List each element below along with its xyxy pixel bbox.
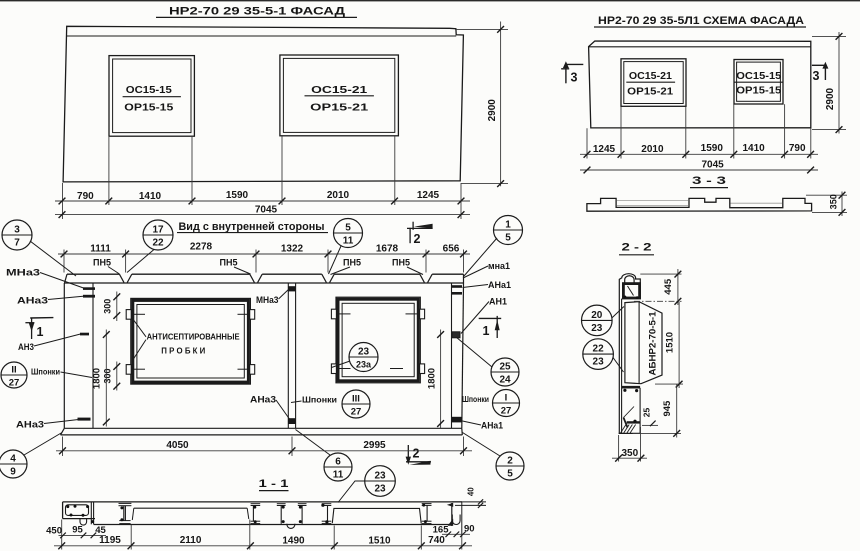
svg-text:АНа1: АНа1 [488,280,511,290]
svg-text:ОС15-15: ОС15-15 [126,85,172,96]
svg-text:2010: 2010 [641,144,664,155]
svg-text:1: 1 [505,220,511,231]
svg-text:АН3: АН3 [18,342,34,352]
svg-text:4: 4 [10,454,16,465]
svg-text:АБНР2-70-5-1: АБНР2-70-5-1 [648,312,658,376]
svg-text:ОС15-21: ОС15-21 [311,85,368,96]
svg-text:27: 27 [9,378,20,389]
svg-text:20: 20 [591,310,603,321]
svg-text:165: 165 [433,524,450,535]
svg-text:4050: 4050 [166,440,189,451]
svg-text:мна1: мна1 [488,261,510,271]
svg-text:22: 22 [152,238,164,249]
svg-text:3: 3 [571,71,578,85]
svg-text:445: 445 [663,278,674,295]
svg-text:МНа3: МНа3 [256,295,279,305]
svg-text:1410: 1410 [139,191,162,202]
svg-text:АН1: АН1 [489,297,507,307]
svg-text:ПН5: ПН5 [392,258,410,268]
svg-text:МНа3: МНа3 [6,267,40,277]
svg-text:Шпонки: Шпонки [462,394,489,404]
svg-text:ОР15-15: ОР15-15 [124,103,174,114]
svg-text:1800: 1800 [426,368,437,389]
svg-text:5: 5 [345,223,351,234]
svg-text:1: 1 [483,324,490,338]
svg-text:1590: 1590 [701,143,724,154]
svg-text:95: 95 [72,524,83,535]
svg-text:1490: 1490 [282,536,305,547]
svg-text:23а: 23а [356,360,372,370]
svg-text:790: 790 [789,143,806,154]
svg-text:17: 17 [152,225,164,236]
svg-text:2900: 2900 [487,99,498,122]
svg-text:7: 7 [14,238,20,249]
svg-text:23: 23 [374,471,386,482]
svg-text:П Р О Б К И: П Р О Б К И [161,345,205,355]
svg-text:ПН5: ПН5 [93,258,111,268]
svg-text:ОР15-15: ОР15-15 [736,86,781,97]
svg-text:2110: 2110 [180,535,202,546]
svg-text:1 - 1: 1 - 1 [259,478,289,490]
svg-text:1322: 1322 [281,243,304,254]
svg-text:АНа3: АНа3 [250,395,276,405]
svg-text:1: 1 [37,325,44,339]
svg-text:11: 11 [343,236,354,247]
svg-text:656: 656 [443,244,460,255]
svg-text:НР2-70 29 35-5Л1 СХЕМА ФАСАДА: НР2-70 29 35-5Л1 СХЕМА ФАСАДА [598,15,804,27]
svg-text:АНа3: АНа3 [16,419,44,429]
svg-text:23: 23 [358,347,370,358]
svg-text:5: 5 [507,469,513,480]
svg-text:1510: 1510 [368,536,391,547]
svg-text:40: 40 [466,487,475,496]
svg-text:III: III [352,394,360,405]
svg-text:Шпонки: Шпонки [31,368,60,377]
svg-text:350: 350 [828,194,838,209]
svg-text:НР2-70 29 35-5-1 ФАСАД: НР2-70 29 35-5-1 ФАСАД [169,6,345,18]
svg-text:2 - 2: 2 - 2 [622,242,652,254]
svg-text:25: 25 [499,362,511,373]
svg-text:2: 2 [507,456,513,467]
svg-text:27: 27 [351,407,362,418]
svg-text:1590: 1590 [226,190,249,201]
svg-text:2278: 2278 [190,241,213,252]
svg-text:11: 11 [333,470,344,481]
svg-text:АНТИСЕПТИРОВАННЫЕ: АНТИСЕПТИРОВАННЫЕ [147,331,240,341]
svg-text:ОР15-21: ОР15-21 [627,86,673,97]
svg-text:790: 790 [77,191,94,202]
svg-text:ОР15-21: ОР15-21 [310,103,369,114]
svg-text:1195: 1195 [99,535,121,546]
svg-text:АНа3: АНа3 [17,295,48,305]
svg-text:23: 23 [591,323,603,334]
svg-text:2995: 2995 [363,440,386,451]
svg-text:3 - 3: 3 - 3 [692,175,726,187]
svg-text:945: 945 [662,400,673,417]
svg-text:АНа1: АНа1 [481,420,503,430]
svg-text:9: 9 [10,467,16,478]
svg-text:Вид с внутренней стороны: Вид с внутренней стороны [179,221,325,233]
svg-text:2: 2 [414,232,421,246]
svg-text:3: 3 [813,69,820,83]
svg-text:ОС15-15: ОС15-15 [736,71,781,82]
svg-text:1678: 1678 [376,243,399,254]
svg-text:1410: 1410 [742,143,765,154]
svg-text:350: 350 [621,448,638,459]
svg-text:300: 300 [102,299,112,314]
svg-text:1245: 1245 [593,144,616,155]
svg-text:6: 6 [335,457,341,468]
svg-text:Шпонки: Шпонки [302,394,337,404]
svg-text:25: 25 [641,408,651,418]
svg-text:3: 3 [14,225,20,236]
svg-text:450: 450 [46,525,62,536]
svg-text:740: 740 [428,535,445,546]
svg-text:1111: 1111 [90,243,111,254]
svg-text:24: 24 [499,375,511,386]
svg-text:I: I [505,393,508,404]
svg-text:1800: 1800 [92,368,103,389]
svg-text:300: 300 [102,368,112,383]
svg-text:1245: 1245 [417,190,440,201]
svg-text:5: 5 [505,233,511,244]
svg-text:ПН5: ПН5 [220,258,238,268]
svg-text:7045: 7045 [701,159,724,170]
svg-text:7045: 7045 [255,204,278,215]
svg-text:II: II [11,365,16,376]
svg-text:23: 23 [593,357,605,368]
svg-text:45: 45 [95,525,106,536]
svg-text:23: 23 [374,484,386,495]
svg-text:27: 27 [501,406,512,417]
svg-text:ОС15-21: ОС15-21 [629,71,672,82]
svg-text:2010: 2010 [327,190,350,201]
svg-text:1510: 1510 [664,332,675,353]
svg-text:22: 22 [593,344,605,355]
svg-text:ПН5: ПН5 [343,258,361,268]
svg-text:2900: 2900 [825,87,836,110]
svg-text:90: 90 [464,523,475,534]
svg-text:2: 2 [413,447,420,461]
